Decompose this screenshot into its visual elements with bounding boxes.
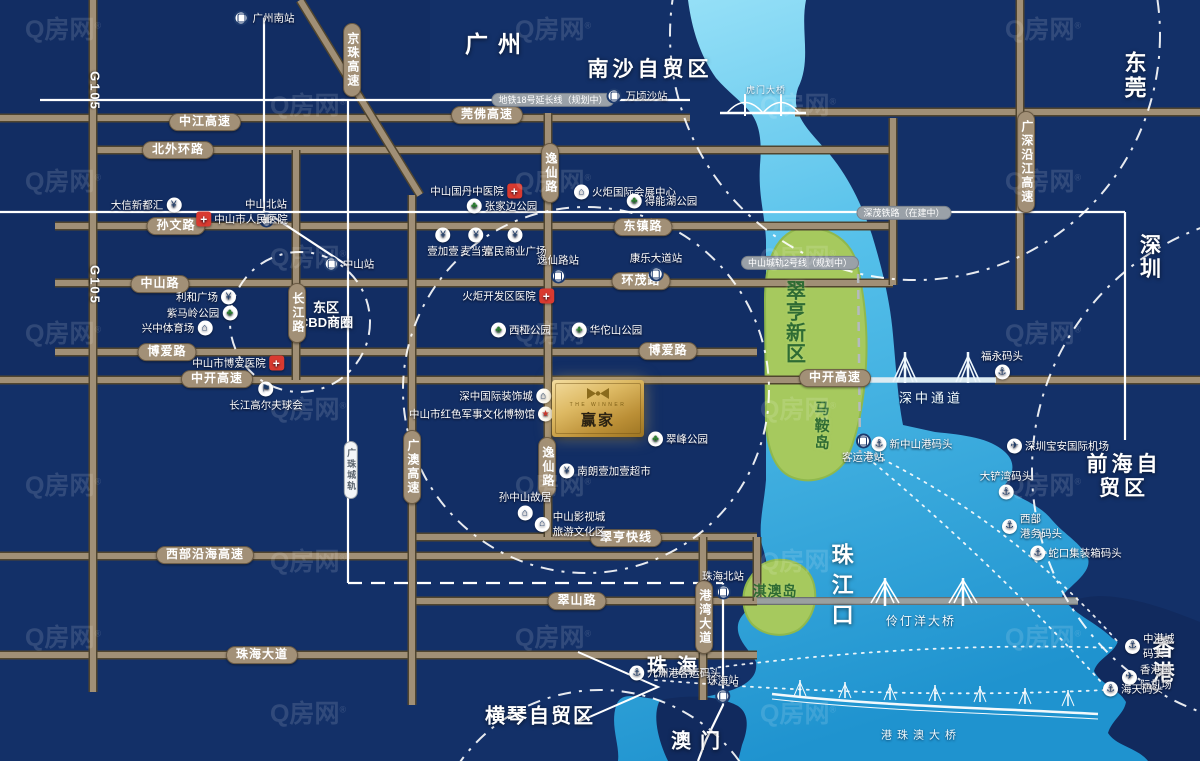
poi-anchor: ⚓中港城码头 — [1125, 631, 1175, 661]
watermark: Q房网® — [25, 10, 101, 46]
station-label: 珠海北站 — [702, 569, 744, 584]
poi-hospital: 中山市博爱医院+ — [192, 356, 284, 371]
poi-label: 张家边公园 — [485, 199, 538, 214]
poi-anchor: ⚓九洲港客运码头 — [629, 666, 721, 681]
hospital-icon: + — [539, 289, 554, 304]
museum-icon: ★ — [538, 407, 553, 422]
road-label: 翠山路 — [547, 592, 606, 610]
poi-label: 火炬开发区医院 — [462, 289, 536, 304]
watermark: Q房网® — [1005, 466, 1081, 502]
project-logo-card[interactable]: THE WINNER 赢家 — [552, 380, 644, 437]
anchor-icon: ⚓ — [629, 666, 644, 681]
poi-hospital: 火炬开发区医院+ — [462, 289, 554, 304]
area-label-city: 东区 CBD商圈 — [299, 301, 353, 331]
watermark: Q房网® — [270, 542, 346, 578]
poi-label: 中山市博爱医院 — [192, 356, 266, 371]
station-label: 万顷沙站 — [626, 89, 668, 104]
shopping-icon: ¥ — [436, 228, 451, 243]
station-label: 中山站 — [343, 257, 375, 272]
area-label-bridge: 伶仃洋大桥 — [886, 615, 956, 629]
watermark: Q房网® — [25, 618, 101, 654]
area-label-bridge: 深中通道 — [899, 392, 963, 407]
poi-hospital: +中山市人民医院 — [196, 212, 288, 227]
area-label-city: 澳门 — [671, 731, 729, 754]
area-label-green: 淇澳岛 — [753, 583, 798, 599]
train-station-icon — [649, 267, 664, 282]
watermark: Q房网® — [270, 390, 346, 426]
road-label: 北外环路 — [142, 141, 214, 159]
location-map: 广州南沙自贸区东莞深圳前海自贸区香港珠海澳门横琴自贸区珠江口东区 CBD商圈翠亨… — [0, 0, 1200, 761]
road-label: 长江路 — [288, 283, 306, 343]
poi-label: 富民商业广场 — [484, 244, 547, 259]
shopping-icon: ¥ — [508, 228, 523, 243]
poi-attraction: ⌂中山影视城 旅游文化区 — [535, 509, 606, 539]
poi-label: 海天码头 — [1121, 682, 1163, 697]
poi-label: 中山影视城 旅游文化区 — [553, 509, 606, 539]
station: 万顷沙站 — [607, 89, 668, 104]
anchor-icon: ⚓ — [1103, 682, 1118, 697]
poi-label: 九洲港客运码头 — [647, 666, 721, 681]
poi-label: 深圳宝安国际机场 — [1025, 439, 1109, 454]
attraction-icon: ⌂ — [197, 321, 212, 336]
poi-label: 中山市人民医院 — [214, 212, 288, 227]
station: 广州南站 — [234, 11, 295, 26]
train-station-icon — [716, 585, 731, 600]
road-label: G105 — [87, 265, 102, 305]
poi-label: 大信新都汇 — [111, 198, 164, 213]
area-label-city: 南沙自贸区 — [588, 58, 713, 82]
anchor-icon: ⚓ — [1002, 519, 1017, 534]
watermark: Q房网® — [1005, 162, 1081, 198]
park-icon: ♣ — [491, 323, 506, 338]
area-label-city: 前海自贸区 — [1086, 453, 1162, 501]
poi-label: 华佗山公园 — [590, 323, 643, 338]
poi-label: 中山国丹中医院 — [430, 184, 504, 199]
poi-label: 翠峰公园 — [666, 432, 708, 447]
train-station-icon — [234, 11, 249, 26]
watermark: Q房网® — [760, 390, 836, 426]
station: 珠海北站 — [702, 569, 744, 600]
train-station-icon — [856, 434, 871, 449]
poi-label: 福永码头 — [981, 349, 1023, 364]
watermark: Q房网® — [270, 694, 346, 730]
watermark: Q房网® — [515, 314, 591, 350]
poi-shopping: ¥壹加壹 — [427, 228, 459, 259]
rail-label: 广珠城轨 — [344, 441, 358, 499]
road-label: 东镇路 — [613, 218, 672, 236]
shopping-icon: ¥ — [469, 228, 484, 243]
poi-label: 中港城码头 — [1143, 631, 1175, 661]
poi-anchor: ⚓海天码头 — [1103, 682, 1163, 697]
station-label: 客运港站 — [842, 450, 884, 465]
road-label: 莞佛高速 — [451, 106, 523, 124]
poi-anchor: ⚓西部 港务码头 — [1002, 511, 1062, 541]
area-label-green: 翠亨新区 — [782, 280, 805, 364]
poi-anchor: ⚓新中山港码头 — [872, 437, 953, 452]
watermark: Q房网® — [760, 86, 836, 122]
park-icon: ♣ — [467, 199, 482, 214]
watermark: Q房网® — [25, 314, 101, 350]
watermark: Q房网® — [270, 86, 346, 122]
attraction-icon: ⌂ — [518, 506, 533, 521]
station-label: 康乐大道站 — [630, 251, 683, 266]
poi-label: 蛇口集装箱码头 — [1048, 546, 1122, 561]
road-label: G105 — [87, 71, 102, 111]
train-station-icon — [607, 89, 622, 104]
watermark: Q房网® — [515, 10, 591, 46]
road-label: 珠海大道 — [226, 646, 298, 664]
watermark: Q房网® — [1005, 618, 1081, 654]
train-station-icon — [716, 689, 731, 704]
poi-museum: 中山市红色军事文化博物馆★ — [409, 407, 553, 422]
poi-label: 深中国际装饰城 — [459, 389, 533, 404]
poi-park: 紫马岭公园♣ — [167, 306, 238, 321]
watermark: Q房网® — [515, 466, 591, 502]
watermark: Q房网® — [1005, 10, 1081, 46]
poi-label: 紫马岭公园 — [167, 306, 220, 321]
watermark: Q房网® — [760, 542, 836, 578]
poi-label: 西部 港务码头 — [1020, 511, 1062, 541]
hospital-icon: + — [269, 356, 284, 371]
anchor-icon: ⚓ — [872, 437, 887, 452]
poi-anchor: ⚓蛇口集装箱码头 — [1030, 546, 1122, 561]
watermark: Q房网® — [760, 694, 836, 730]
watermark: Q房网® — [760, 238, 836, 274]
anchor-icon: ⚓ — [1125, 639, 1140, 654]
poi-attraction: 兴中体育场⌂ — [142, 321, 213, 336]
watermark: Q房网® — [1005, 314, 1081, 350]
watermark: Q房网® — [25, 466, 101, 502]
train-station-icon — [551, 269, 566, 284]
park-icon: ♣ — [222, 306, 237, 321]
attraction-icon: ⌂ — [535, 517, 550, 532]
poi-hospital: 中山国丹中医院+ — [430, 184, 522, 199]
road-label: 中开高速 — [799, 369, 871, 387]
area-label-city: 深圳 — [1133, 234, 1178, 282]
poi-attraction: 深中国际装饰城⌂ — [459, 389, 551, 404]
poi-plane: ✈深圳宝安国际机场 — [1007, 439, 1109, 454]
watermark: Q房网® — [25, 162, 101, 198]
attraction-icon: ⌂ — [536, 389, 551, 404]
area-label-city: 横琴自贸区 — [485, 706, 595, 729]
watermark: Q房网® — [270, 238, 346, 274]
road-label: 博爱路 — [638, 342, 697, 360]
shopping-icon: ¥ — [221, 290, 236, 305]
poi-label: 利和广场 — [176, 290, 218, 305]
poi-shopping: 大信新都汇¥ — [111, 198, 182, 213]
poi-anchor: 福永码头⚓ — [981, 349, 1023, 380]
area-label-city: 东莞 — [1110, 51, 1170, 102]
station: 康乐大道站 — [630, 251, 683, 282]
hospital-icon: + — [196, 212, 211, 227]
road-label: 博爱路 — [137, 343, 196, 361]
park-icon: ♣ — [648, 432, 663, 447]
anchor-icon: ⚓ — [995, 365, 1010, 380]
poi-park: ♣张家边公园 — [467, 199, 538, 214]
poi-label: 得能湖公园 — [645, 194, 698, 209]
road-label: 广澳高速 — [403, 430, 421, 504]
watermark: Q房网® — [515, 618, 591, 654]
poi-shopping: ¥富民商业广场 — [484, 228, 547, 259]
plane-icon: ✈ — [1007, 439, 1022, 454]
poi-park: ♣翠峰公园 — [648, 432, 708, 447]
watermark: Q房网® — [515, 162, 591, 198]
area-label-bridge: 港珠澳大桥 — [881, 730, 961, 743]
poi-label: 壹加壹 — [427, 244, 459, 259]
road-label: 中江高速 — [169, 113, 241, 131]
poi-shopping: 利和广场¥ — [176, 290, 236, 305]
anchor-icon: ⚓ — [1030, 546, 1045, 561]
rail-label: 地铁18号延长线（规划中） — [491, 93, 614, 107]
poi-label: 兴中体育场 — [142, 321, 195, 336]
poi-label: 新中山港码头 — [890, 437, 953, 452]
station-label: 广州南站 — [253, 11, 295, 26]
shopping-icon: ¥ — [166, 198, 181, 213]
station-label: 中山北站 — [245, 197, 287, 212]
poi-label: 中山市红色军事文化博物馆 — [409, 407, 535, 422]
park-icon: ♣ — [627, 194, 642, 209]
poi-park: ♣得能湖公园 — [627, 194, 698, 209]
gold-frame — [555, 383, 641, 434]
rail-label: 深茂铁路（在建中） — [856, 206, 951, 220]
road-label: 西部沿海高速 — [156, 546, 254, 564]
